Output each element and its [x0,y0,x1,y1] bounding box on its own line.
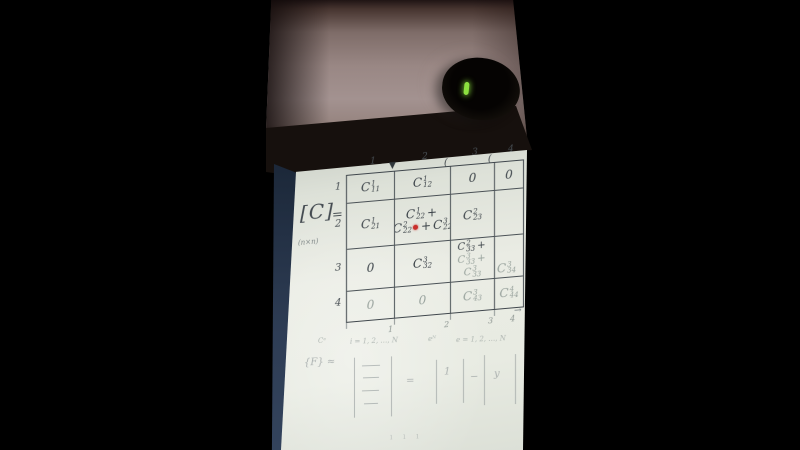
vector-bracket-right [484,354,516,405]
index-note-ij: i = 1, 2, …, N [350,336,398,346]
vector-entry-one: 1 [444,366,450,377]
index-note-e: eᴺ [428,335,436,343]
stray-pencil-marks: ı ı ı [390,431,423,441]
index-note-range: e = 1, 2, …, N [456,334,506,344]
equation-minus: − [470,371,478,382]
vector-entry-y: y [494,369,500,380]
equation-label: {F} ≈ [304,356,335,368]
photo-of-monitor: [C] (n×n) = C111C11200C121C122+C222+C322… [0,0,800,450]
equation-equals: = [406,376,414,387]
index-note-c: Cᵉ [318,337,326,345]
handwritten-notes-lower: Cᵉ i = 1, 2, …, N eᴺ e = 1, 2, …, N {F} … [288,141,538,450]
